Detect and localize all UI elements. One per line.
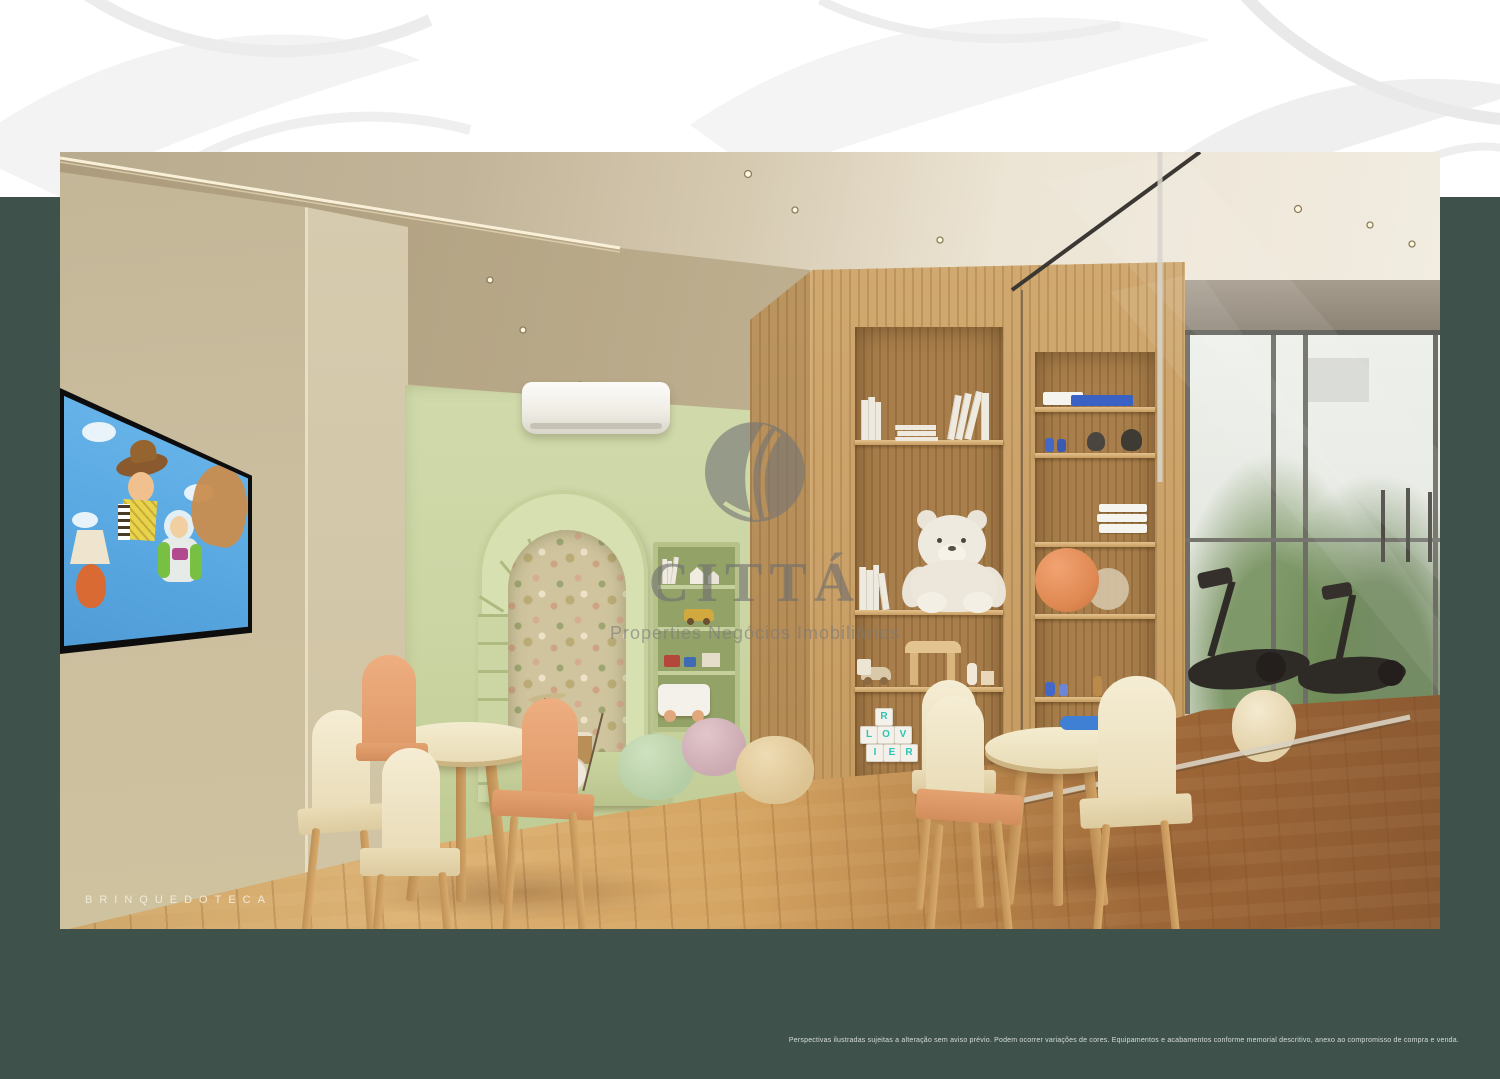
chair-back	[1098, 676, 1176, 800]
letter-block: R	[900, 744, 918, 762]
citta-sphere-logo-icon	[703, 420, 807, 524]
chair-leg	[1090, 824, 1111, 929]
letter-block: R	[875, 708, 893, 726]
letter-block: L	[860, 726, 878, 744]
pouf-cream	[736, 736, 814, 804]
block-letter: E	[889, 747, 896, 758]
watermark-title: CITTÁ	[595, 551, 915, 615]
kids-chair-peach-seat	[916, 696, 1026, 929]
letter-block: V	[894, 726, 912, 744]
woody-hat-crown	[128, 438, 157, 464]
kids-chair-cream-large	[1080, 676, 1196, 929]
chair-back	[926, 696, 984, 796]
block-letter: I	[874, 747, 877, 758]
block-letter: R	[880, 711, 887, 722]
chair-leg	[502, 816, 519, 929]
legal-disclaimer: Perspectivas ilustradas sujeitas a alter…	[789, 1037, 1459, 1044]
chair-leg	[438, 872, 457, 929]
letter-block: I	[866, 744, 884, 762]
buzz-suit-green	[158, 542, 170, 578]
watermark: CITTÁ Properties Negócios Imobiliários	[595, 420, 915, 644]
woody-face	[128, 472, 154, 502]
chair-leg	[1160, 820, 1184, 929]
block-letter: L	[866, 729, 872, 740]
buzz-chest	[172, 548, 188, 560]
letter-block: E	[883, 744, 901, 762]
chair-back	[522, 698, 578, 796]
chair-leg	[924, 824, 943, 929]
letter-block: O	[877, 726, 895, 744]
lamp-shade	[70, 530, 110, 564]
block-letter: O	[882, 729, 890, 740]
chair-seat	[915, 788, 1023, 825]
cloud	[72, 512, 98, 528]
buzz-face	[170, 516, 188, 538]
chair-leg	[568, 812, 587, 929]
playroom-render: R L O V I E R	[60, 152, 1440, 929]
chair-leg	[366, 874, 385, 929]
chair-leg	[300, 828, 321, 929]
brochure-page: R L O V I E R	[0, 0, 1500, 1079]
chair-leg	[993, 820, 1015, 929]
chair-back	[362, 655, 416, 747]
buzz-suit-green	[190, 544, 202, 580]
chair-back	[382, 748, 440, 852]
cloud	[82, 422, 116, 442]
kids-chair-cream	[360, 748, 464, 929]
lamp-base-orange	[76, 564, 106, 608]
watermark-subtitle: Properties Negócios Imobiliários	[595, 623, 915, 644]
block-letter: V	[900, 729, 907, 740]
block-letter: R	[905, 747, 912, 758]
kids-chair-peach	[492, 698, 598, 929]
room-caption: BRINQUEDOTECA	[85, 894, 272, 906]
background-toy-shape	[184, 461, 255, 551]
woody-vest	[118, 504, 130, 540]
chair-seat	[491, 789, 594, 820]
chair-seat	[1079, 793, 1192, 829]
table-leg	[1053, 764, 1063, 906]
